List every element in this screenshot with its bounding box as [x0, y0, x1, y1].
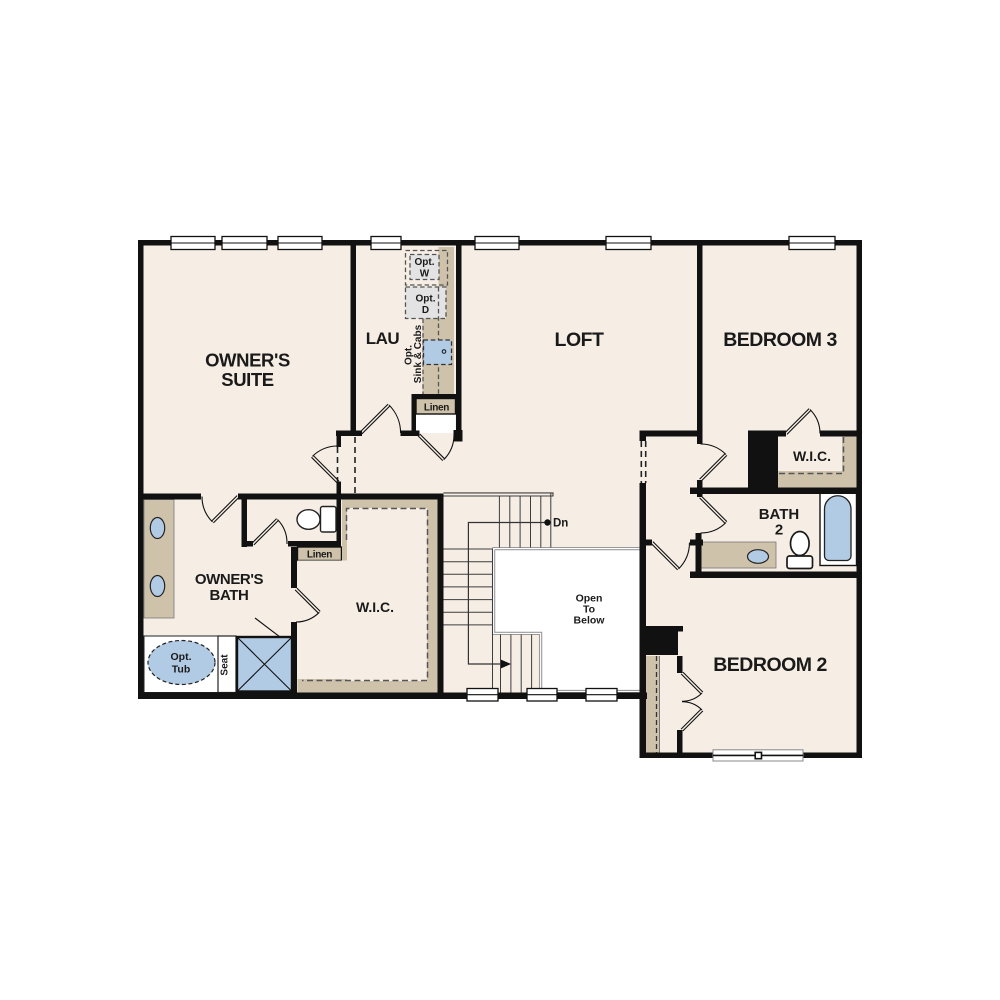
- svg-text:SUITE: SUITE: [221, 369, 274, 390]
- svg-text:LOFT: LOFT: [555, 329, 604, 351]
- svg-text:BATH: BATH: [759, 506, 800, 523]
- svg-text:OWNER'S: OWNER'S: [195, 571, 264, 588]
- svg-text:W.I.C.: W.I.C.: [793, 448, 831, 464]
- svg-text:D: D: [422, 305, 429, 316]
- svg-text:BEDROOM 3: BEDROOM 3: [723, 329, 837, 351]
- svg-text:W.I.C.: W.I.C.: [356, 599, 394, 615]
- svg-text:Linen: Linen: [307, 550, 332, 561]
- svg-text:Opt.: Opt.: [415, 257, 435, 268]
- svg-text:BATH: BATH: [210, 587, 249, 604]
- svg-text:Dn: Dn: [553, 518, 568, 530]
- svg-text:W: W: [420, 269, 430, 280]
- svg-text:BEDROOM 2: BEDROOM 2: [713, 654, 827, 676]
- svg-text:Sink & Cabs: Sink & Cabs: [413, 324, 424, 383]
- svg-text:Opt.: Opt.: [416, 294, 436, 305]
- svg-text:Tub: Tub: [172, 664, 190, 676]
- svg-text:Below: Below: [574, 615, 606, 627]
- svg-text:OWNER'S: OWNER'S: [205, 350, 290, 371]
- svg-text:2: 2: [775, 522, 783, 539]
- svg-text:Seat: Seat: [220, 654, 231, 676]
- svg-text:Linen: Linen: [424, 403, 449, 414]
- svg-text:Opt.: Opt.: [171, 651, 192, 663]
- svg-text:LAU: LAU: [366, 329, 400, 348]
